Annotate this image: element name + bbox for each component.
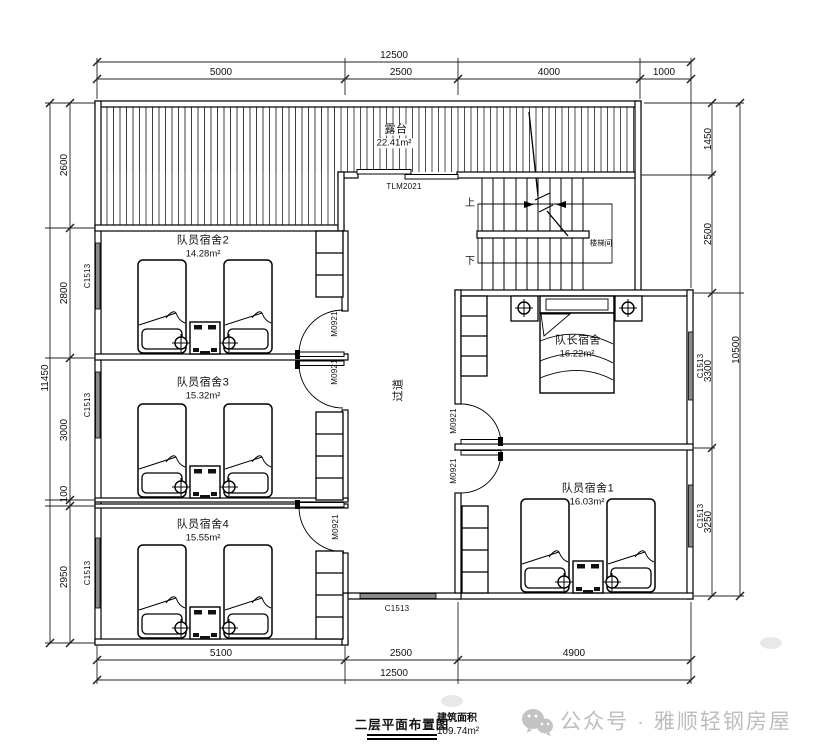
wechat-icon <box>520 706 554 740</box>
title-underline-2 <box>367 738 437 740</box>
wall-right-upper-exterior <box>635 101 641 296</box>
pillow <box>546 299 608 310</box>
dim-left-seg-3: 100 <box>60 486 70 503</box>
wall-divider-dorm3-4a <box>95 498 348 502</box>
stairs-down-label: 下 <box>465 257 475 267</box>
corridor-name: 过道 <box>394 379 405 402</box>
wall-divider-captain-dorm1 <box>455 444 693 450</box>
title-underline-1 <box>367 734 437 736</box>
dim-right-total: 10500 <box>732 336 742 364</box>
dorm4-area: 15.55m² <box>186 533 221 543</box>
watermark-ghosts <box>441 637 782 707</box>
door-stop-dorm2 <box>295 350 300 359</box>
window-tag-dorm4: C1513 <box>84 561 92 586</box>
wall-terrace-corridor-right <box>457 172 635 178</box>
furniture-dorm4 <box>138 545 343 639</box>
terrace-door-tag: TLM2021 <box>386 183 421 191</box>
watermark-text: 公众号 · 雅顺轻钢房屋 <box>560 712 792 733</box>
dim-top-seg-3: 1000 <box>653 68 675 78</box>
dim-top-seg-1: 2500 <box>390 68 412 78</box>
dim-bottom-seg-1: 2500 <box>390 649 412 659</box>
dim-left-seg-4: 2950 <box>60 566 70 588</box>
wall-corridor-right-a <box>455 290 461 404</box>
window-corridor-bottom <box>360 594 436 599</box>
door-leaf-dorm1 <box>461 451 501 456</box>
dim-top-seg-0: 5000 <box>210 68 232 78</box>
wall-terrace-step <box>338 172 344 231</box>
nightstand <box>573 561 603 593</box>
nightstand <box>190 322 220 354</box>
dorm3-name: 队员宿舍3 <box>177 378 230 389</box>
door-arc-captain <box>461 404 501 444</box>
furniture-dorm2 <box>138 231 343 354</box>
wall-terrace-dorm2 <box>95 225 344 231</box>
window-tag-dorm2: C1513 <box>84 264 92 289</box>
dim-left-lines <box>50 103 70 643</box>
terrace-name: 露台 <box>383 125 410 136</box>
door-leaf-dorm4 <box>299 503 344 508</box>
wardrobe <box>316 412 343 500</box>
floor-plan-drawing <box>0 0 813 754</box>
wall-corridor-right-b <box>455 493 461 593</box>
dim-right-seg-3: 3250 <box>704 511 714 533</box>
wardrobe <box>316 551 343 639</box>
dorm2-area: 14.28m² <box>186 249 221 259</box>
dim-left-total: 11450 <box>41 364 51 391</box>
door-stop-dorm3 <box>295 360 300 369</box>
dorm3-area: 15.32m² <box>186 391 221 401</box>
terrace-sliding-door-leaf-b <box>405 175 458 180</box>
window-dorm4 <box>96 538 101 608</box>
window-tag-dorm3: C1513 <box>84 393 92 418</box>
stairs-up-label: 上 <box>465 199 475 209</box>
nightstand <box>190 607 220 639</box>
wardrobe <box>461 296 487 376</box>
dim-left-seg-0: 2600 <box>60 154 70 176</box>
area-value: 109.74m² <box>437 727 479 737</box>
terrace-deck-hatch <box>101 107 635 225</box>
nightstand <box>190 466 220 498</box>
door-arc-dorm1 <box>461 453 501 493</box>
dim-top-total: 12500 <box>380 51 408 61</box>
door-tag-dorm1: M0921 <box>450 458 458 483</box>
captain-name: 队长宿舍 <box>555 336 601 347</box>
furniture-captain <box>461 296 642 393</box>
door-stop-dorm4 <box>295 500 300 509</box>
door-tag-dorm4: M0921 <box>332 514 340 539</box>
door-tag-dorm2: M0921 <box>331 311 339 336</box>
terrace-sliding-door-leaf-a <box>357 170 411 175</box>
dim-bottom-seg-0: 5100 <box>210 649 232 659</box>
wall-dorm4-bottom <box>95 639 348 645</box>
window-captain <box>689 332 694 400</box>
captain-area: 16.22m² <box>560 349 595 359</box>
dorm1-name: 队员宿舍1 <box>562 484 615 495</box>
dim-right-seg-2: 3300 <box>704 360 714 382</box>
wardrobe <box>462 506 488 593</box>
wall-top-exterior <box>95 101 641 107</box>
wall-bottom-right <box>455 593 693 599</box>
dorm1-area: 16.03m² <box>570 497 605 507</box>
furniture-dorm1 <box>462 499 655 593</box>
dim-bottom-seg-2: 4900 <box>563 649 585 659</box>
window-dorm2 <box>96 243 101 309</box>
wall-captain-top <box>455 290 693 296</box>
dim-bottom-total: 12500 <box>380 669 408 679</box>
drawing-title: 二层平面布置图 <box>355 719 450 732</box>
window-dorm1 <box>689 485 694 547</box>
dim-left-seg-2: 3000 <box>60 419 70 441</box>
dorm4-name: 队员宿舍4 <box>177 520 230 531</box>
floor-plan-page: 露台 22.41m² 队员宿舍2 14.28m² 队员宿舍3 15.32m² 队… <box>0 0 813 754</box>
door-tag-dorm3: M0921 <box>331 359 339 384</box>
window-tag-corridor: C1513 <box>385 605 410 613</box>
dim-right-seg-1: 2500 <box>704 223 714 245</box>
wardrobe <box>316 231 343 297</box>
dorm2-name: 队员宿舍2 <box>177 236 230 247</box>
door-stop-captain <box>498 437 503 446</box>
dim-top-seg-2: 4000 <box>538 68 560 78</box>
door-leaf-dorm2 <box>299 352 344 357</box>
door-leaf-captain <box>461 440 501 445</box>
stairwell-name: 楼梯间 <box>590 239 613 247</box>
furniture-dorm3 <box>138 404 343 500</box>
door-tag-captain: M0921 <box>450 408 458 433</box>
terrace-area: 22.41m² <box>375 138 414 148</box>
dim-left-seg-1: 2800 <box>60 282 70 304</box>
door-stop-dorm1 <box>498 452 503 461</box>
area-caption: 建筑面积 <box>437 714 477 724</box>
stair-landing <box>477 231 589 238</box>
window-dorm3 <box>96 372 101 438</box>
dim-right-seg-0: 1450 <box>704 128 714 150</box>
